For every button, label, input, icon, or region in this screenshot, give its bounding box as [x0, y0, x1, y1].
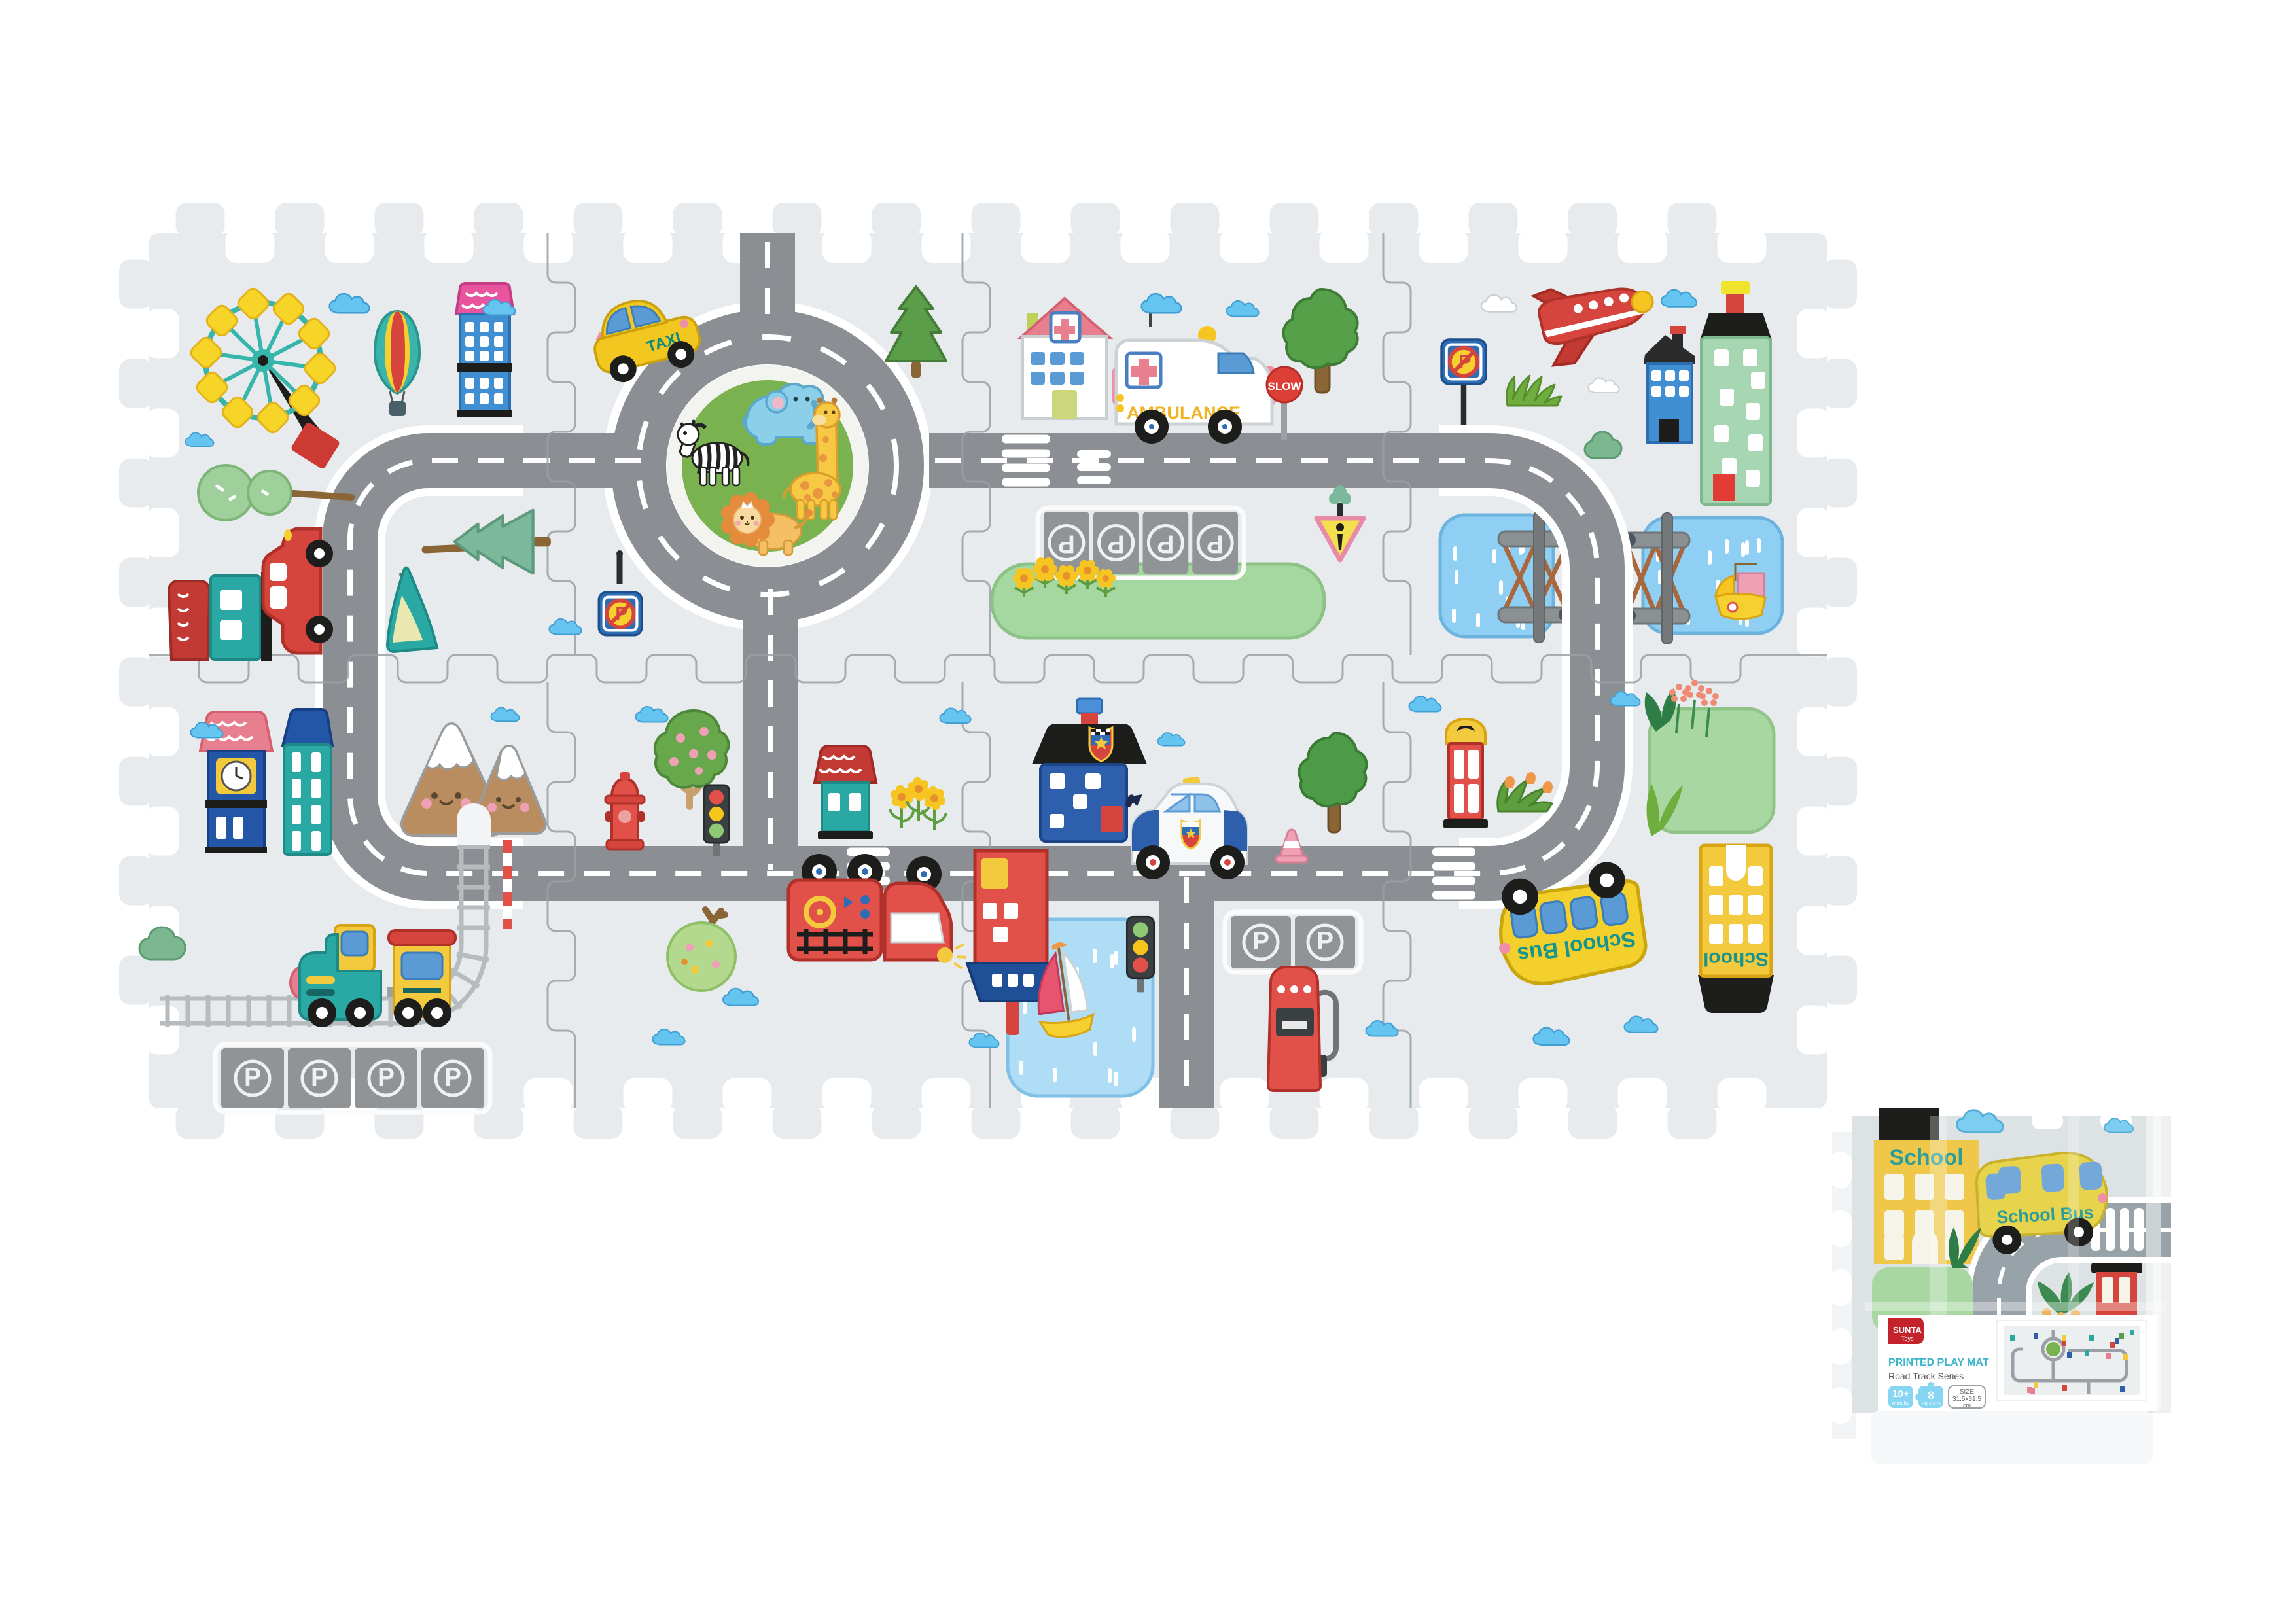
svg-text:P: P: [311, 1063, 328, 1091]
svg-text:SUNTA: SUNTA: [1893, 1325, 1922, 1335]
svg-text:10+: 10+: [1892, 1388, 1909, 1400]
svg-text:Toys: Toys: [1901, 1335, 1914, 1342]
svg-text:P: P: [244, 1063, 261, 1091]
svg-text:months: months: [1892, 1400, 1909, 1406]
svg-text:School: School: [1703, 948, 1769, 970]
svg-text:P: P: [1252, 927, 1269, 955]
svg-text:SLOW: SLOW: [1268, 380, 1302, 393]
svg-text:cm: cm: [1963, 1402, 1971, 1409]
svg-text:SIZE: SIZE: [1960, 1388, 1975, 1396]
svg-text:P: P: [444, 1063, 461, 1091]
svg-text:P: P: [1207, 530, 1224, 558]
svg-text:P: P: [1157, 530, 1174, 558]
svg-text:School: School: [1889, 1145, 1963, 1170]
svg-text:PIECES: PIECES: [1921, 1401, 1940, 1407]
svg-text:P: P: [378, 1063, 395, 1091]
svg-text:PRINTED PLAY MAT: PRINTED PLAY MAT: [1888, 1357, 1989, 1368]
svg-text:P: P: [1316, 927, 1333, 955]
svg-text:P: P: [1108, 530, 1125, 558]
svg-text:Road Track Series: Road Track Series: [1888, 1371, 1964, 1381]
svg-text:8: 8: [1928, 1389, 1934, 1402]
svg-text:P: P: [1058, 530, 1075, 558]
